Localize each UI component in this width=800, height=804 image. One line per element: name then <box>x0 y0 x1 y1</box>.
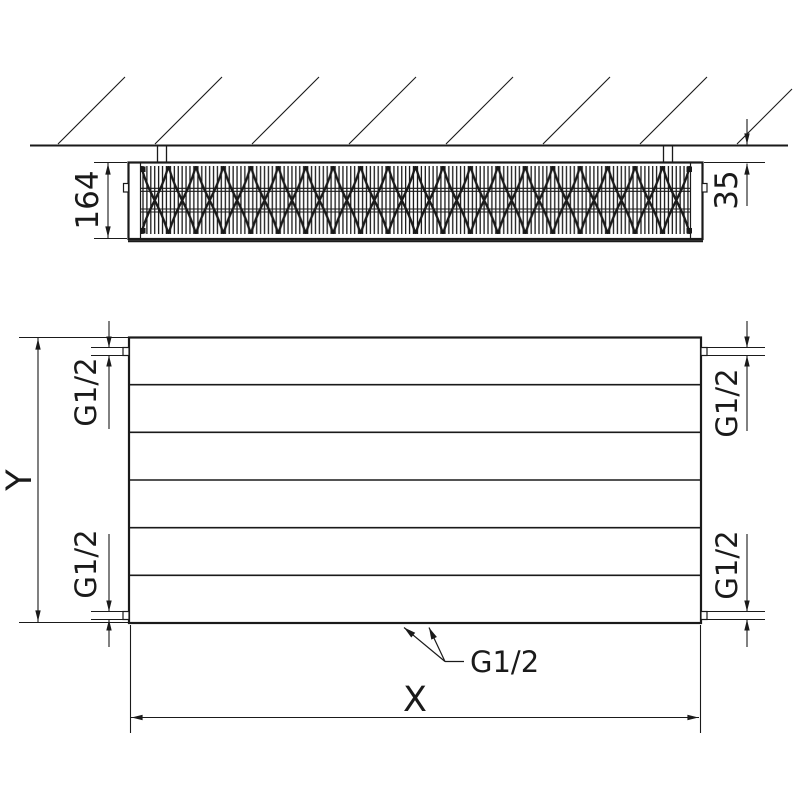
side-tab-right <box>702 184 707 193</box>
width-dimension-label: X <box>403 680 427 720</box>
hatch-line <box>349 77 416 144</box>
dimension-arrow <box>744 337 749 348</box>
g12-label-top-right: G1/2 <box>710 368 744 437</box>
hatch-line <box>640 77 707 144</box>
depth-dimension: 164 <box>70 163 127 239</box>
side-view-section: 164 35 <box>30 77 792 241</box>
connection-stub-bottom-left <box>123 612 129 620</box>
g12-dimension-bottom-left: G1/2 <box>69 529 128 647</box>
hatch-line <box>252 77 319 144</box>
side-tab-left <box>124 184 129 193</box>
dimension-arrow <box>105 226 110 237</box>
connection-stub-bottom-right <box>701 612 707 620</box>
leader-arrow <box>429 628 445 662</box>
corner-block <box>140 228 146 234</box>
dimension-arrow <box>106 601 111 612</box>
radiator-cross-section <box>124 163 708 242</box>
dimension-arrow <box>106 337 111 348</box>
g12-dimension-top-right: G1/2 <box>702 321 765 438</box>
height-dimension-label: Y <box>0 469 40 492</box>
dimension-arrow <box>106 356 111 367</box>
bottom-connection-leader: G1/2 <box>404 628 539 680</box>
mounting-bracket-left <box>158 146 167 162</box>
dimension-arrow <box>744 601 749 612</box>
dimension-arrow <box>106 620 111 631</box>
depth-dimension-label: 164 <box>70 170 106 229</box>
hatch-line <box>543 77 610 144</box>
dimension-arrow <box>744 133 749 144</box>
dimension-arrow <box>744 356 749 367</box>
dimension-arrow <box>744 620 749 631</box>
hatch-line <box>58 77 125 144</box>
connection-stub-top-right <box>701 348 707 356</box>
hatch-line <box>155 77 222 144</box>
dimension-arrow <box>132 715 143 720</box>
radiator-technical-drawing: 164 35 <box>0 0 800 800</box>
wall-hatching <box>58 77 792 144</box>
g12-label-bottom-center: G1/2 <box>470 645 539 679</box>
g12-label-bottom-right: G1/2 <box>710 530 744 599</box>
dimension-arrow <box>105 164 110 175</box>
hatch-line <box>446 77 513 144</box>
corner-block <box>687 167 693 173</box>
dimension-arrow <box>35 339 40 350</box>
g12-label-bottom-left: G1/2 <box>69 529 103 598</box>
g12-label-top-left: G1/2 <box>69 357 103 426</box>
wall-gap-dimension-label: 35 <box>709 170 745 209</box>
corner-block <box>140 167 146 173</box>
front-view-section: G1/2 G1/2 G1/2 G1/2 <box>0 321 765 733</box>
connection-stub-top-left <box>123 348 129 356</box>
width-dimension: X <box>131 625 701 733</box>
corner-block <box>687 228 693 234</box>
dimension-arrow <box>744 164 749 175</box>
dimension-arrow <box>687 715 698 720</box>
radiator-fin-pattern <box>141 166 690 234</box>
g12-dimension-bottom-right: G1/2 <box>702 530 765 647</box>
dimension-arrow <box>35 610 40 621</box>
mounting-bracket-right <box>664 146 673 162</box>
wall-gap-dimension: 35 <box>704 119 765 210</box>
leader-arrow <box>404 628 445 662</box>
